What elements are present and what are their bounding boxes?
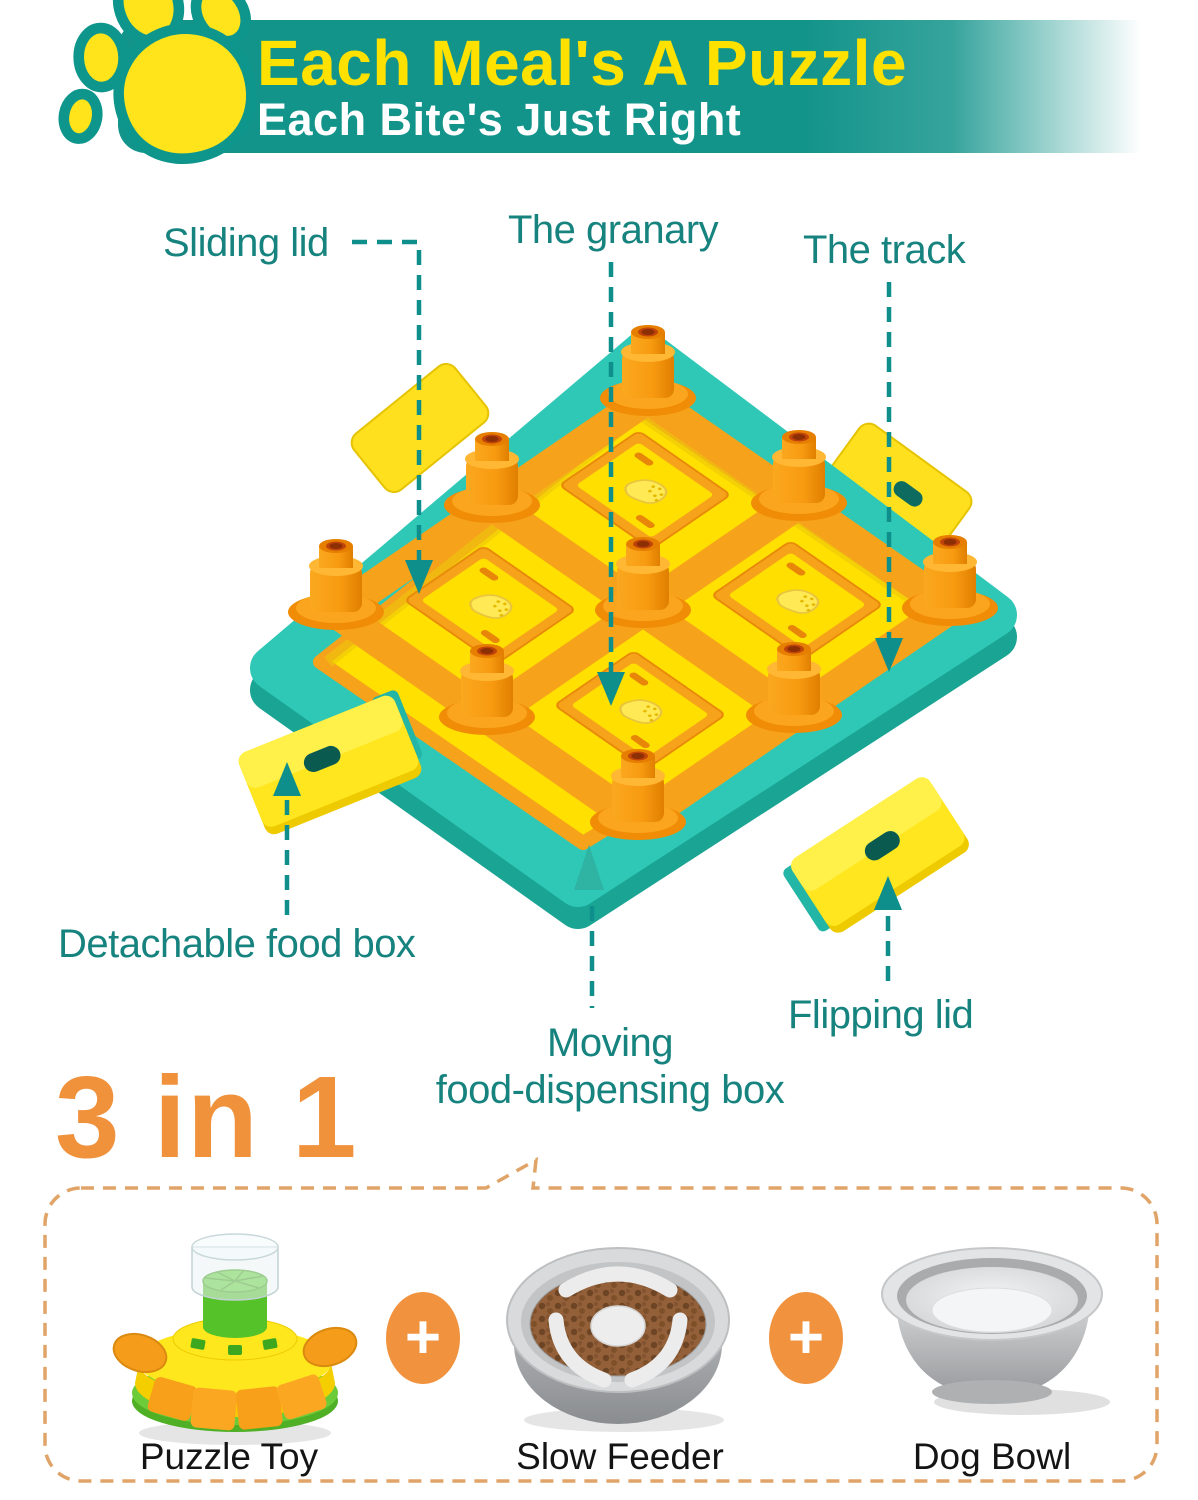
label-detachable-food-box: Detachable food box bbox=[58, 922, 415, 967]
label-sliding-lid: Sliding lid bbox=[163, 221, 329, 266]
label-granary: The granary bbox=[508, 208, 718, 253]
label-moving-box: Moving food-dispensing box bbox=[410, 1020, 810, 1114]
puzzle-toy-image bbox=[109, 1234, 361, 1445]
product-infographic: Each Meal's A Puzzle Each Bite's Just Ri… bbox=[0, 0, 1198, 1500]
paw-icon bbox=[19, 0, 289, 196]
puzzle-feeder-product-image bbox=[235, 325, 998, 942]
label-flipping-lid: Flipping lid bbox=[788, 993, 973, 1038]
plus-icon: + bbox=[769, 1292, 843, 1384]
plus-icon: + bbox=[386, 1292, 460, 1384]
three-in-one-headline: 3 in 1 bbox=[55, 1050, 358, 1184]
label-puzzle-toy: Puzzle Toy bbox=[69, 1436, 389, 1478]
detachable-food-box-right bbox=[779, 773, 973, 942]
label-moving-line2: food-dispensing box bbox=[410, 1067, 810, 1114]
label-slow-feeder: Slow Feeder bbox=[460, 1436, 780, 1478]
label-track: The track bbox=[803, 228, 965, 273]
label-moving-line1: Moving bbox=[410, 1020, 810, 1067]
label-dog-bowl: Dog Bowl bbox=[832, 1436, 1152, 1478]
dog-bowl-image bbox=[882, 1248, 1110, 1415]
slow-feeder-image bbox=[507, 1248, 729, 1432]
